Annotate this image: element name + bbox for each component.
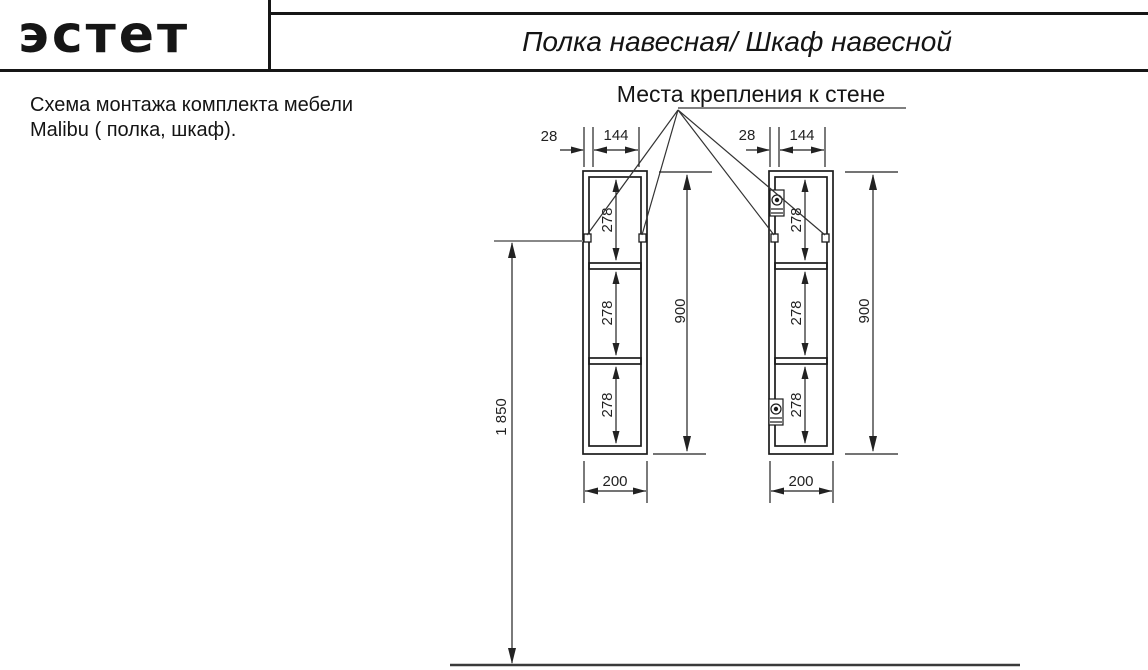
dim-1850: 1 850 <box>493 398 510 436</box>
dim-28-right: 28 <box>739 127 756 144</box>
mount-bracket-left <box>771 234 778 242</box>
assembly-drawing: 28 144 28 144 278 2 <box>0 0 1148 670</box>
shelf-width-dimension: 200 <box>584 461 647 503</box>
dim-28-left: 28 <box>541 128 558 145</box>
door-hinge-bottom <box>769 399 783 425</box>
dim-900-left: 900 <box>672 298 689 323</box>
dim-278-right-2: 278 <box>788 300 805 325</box>
cabinet-top-dimensions: 28 144 <box>739 127 825 167</box>
dim-278-left-2: 278 <box>599 300 616 325</box>
dim-278-right-1: 278 <box>788 207 805 232</box>
shelf-board-top <box>589 263 641 269</box>
dim-278-right-3: 278 <box>788 392 805 417</box>
mount-bracket-right <box>639 234 646 242</box>
cabinet-height-dimension: 900 <box>845 172 898 454</box>
cabinet-shelf-top <box>775 263 827 269</box>
shelf-board-bottom <box>589 358 641 364</box>
dim-278-left-3: 278 <box>599 392 616 417</box>
dim-200-left: 200 <box>602 473 627 490</box>
dim-900-right: 900 <box>856 298 873 323</box>
dim-200-right: 200 <box>788 473 813 490</box>
mount-bracket-right <box>822 234 829 242</box>
cabinet-shelf-bottom <box>775 358 827 364</box>
mounting-height-dimension: 1 850 <box>493 241 583 664</box>
dim-278-left-1: 278 <box>599 207 616 232</box>
shelf-height-dimension: 900 <box>653 172 712 454</box>
dim-144-left: 144 <box>603 127 628 144</box>
shelf-top-dimensions: 28 144 <box>541 127 639 167</box>
shelf-compartment-dimensions: 278 278 278 <box>599 179 620 444</box>
cabinet-width-dimension: 200 <box>770 461 833 503</box>
dim-144-right: 144 <box>789 127 814 144</box>
cabinet-compartment-dimensions: 278 278 278 <box>788 179 809 444</box>
instruction-page: эстет Полка навесная/ Шкаф навесной Схем… <box>0 0 1148 670</box>
